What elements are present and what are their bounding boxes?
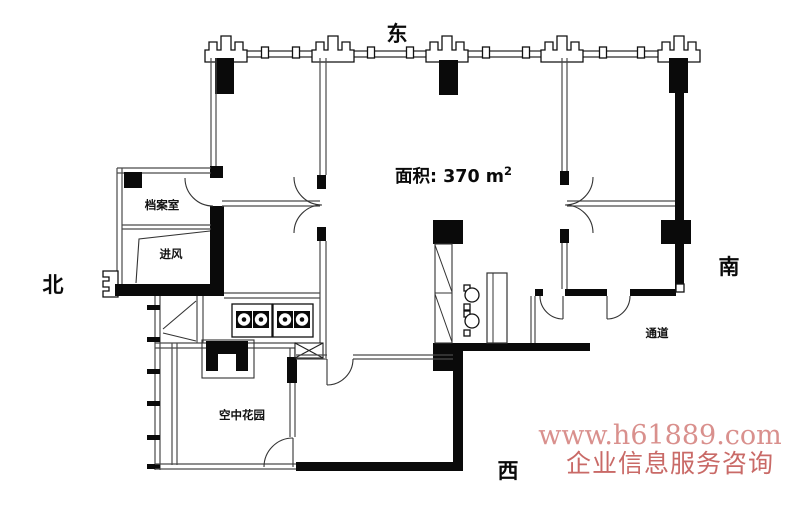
floor-plan-canvas: 东 北 南 西 面积: 370 m2 档案室 进风 空中花园 通道 www.h6… bbox=[0, 0, 799, 508]
door-leaf-stub bbox=[560, 171, 569, 185]
mullion-tab bbox=[638, 47, 645, 58]
label-west: 西 bbox=[498, 459, 519, 483]
stairs-shaft bbox=[435, 244, 452, 343]
concrete-columns bbox=[215, 58, 691, 244]
area-superscript: 2 bbox=[504, 164, 512, 178]
door-leaf-stub bbox=[317, 175, 326, 189]
door-arc bbox=[327, 359, 353, 385]
corner-notch bbox=[676, 284, 684, 292]
concrete-column bbox=[124, 172, 142, 188]
ramp-area bbox=[163, 296, 203, 343]
door-arc bbox=[185, 178, 213, 206]
rail-tick bbox=[147, 464, 160, 469]
mullion-tab bbox=[368, 47, 375, 58]
watermark-url: www.h61889.com bbox=[538, 420, 782, 451]
mullion-tab bbox=[262, 47, 269, 58]
desk bbox=[487, 273, 507, 343]
label-sky-garden: 空中花园 bbox=[219, 408, 265, 422]
fan-room bbox=[224, 293, 320, 337]
flue-shaft bbox=[202, 340, 254, 378]
mullion-tab bbox=[293, 47, 300, 58]
label-archive-room: 档案室 bbox=[145, 198, 180, 212]
rail-tick bbox=[147, 435, 160, 440]
watermark-caption: 企业信息服务咨询 bbox=[566, 449, 774, 478]
mullion-tab bbox=[483, 47, 490, 58]
mullion-tab bbox=[407, 47, 414, 58]
label-air-intake: 进风 bbox=[160, 247, 183, 261]
door-arc bbox=[264, 438, 293, 467]
rail-tick bbox=[147, 305, 160, 310]
concrete-column bbox=[433, 220, 463, 244]
archive-room bbox=[103, 168, 213, 297]
door-leaf-stub bbox=[560, 229, 569, 243]
door-leaf-stub bbox=[317, 227, 326, 241]
rail-tick bbox=[147, 401, 160, 406]
x-brace bbox=[295, 343, 323, 358]
area-value: 面积: 370 m bbox=[395, 167, 504, 187]
passage-door bbox=[540, 296, 563, 319]
chair bbox=[464, 285, 479, 310]
label-east: 东 bbox=[387, 22, 408, 46]
column-marker bbox=[312, 36, 354, 62]
column-marker bbox=[426, 36, 468, 62]
label-north: 北 bbox=[43, 273, 64, 297]
chair bbox=[464, 311, 479, 336]
top-curtain-wall bbox=[205, 36, 700, 62]
mullion-tab bbox=[523, 47, 530, 58]
label-passage: 通道 bbox=[646, 326, 669, 340]
rail-tick bbox=[147, 369, 160, 374]
label-south: 南 bbox=[719, 255, 740, 279]
ramp-line bbox=[163, 301, 196, 329]
area-text: 面积: 370 m2 bbox=[395, 164, 512, 187]
double-door-east bbox=[565, 177, 593, 233]
ramp-line bbox=[163, 333, 196, 341]
passage-door bbox=[607, 296, 630, 319]
floor-plan-page: 东 北 南 西 面积: 370 m2 档案室 进风 空中花园 通道 www.h6… bbox=[0, 0, 799, 508]
mullion-tab bbox=[600, 47, 607, 58]
rail-tick bbox=[147, 337, 160, 342]
concrete-column bbox=[439, 60, 458, 95]
concrete-column bbox=[215, 58, 234, 94]
